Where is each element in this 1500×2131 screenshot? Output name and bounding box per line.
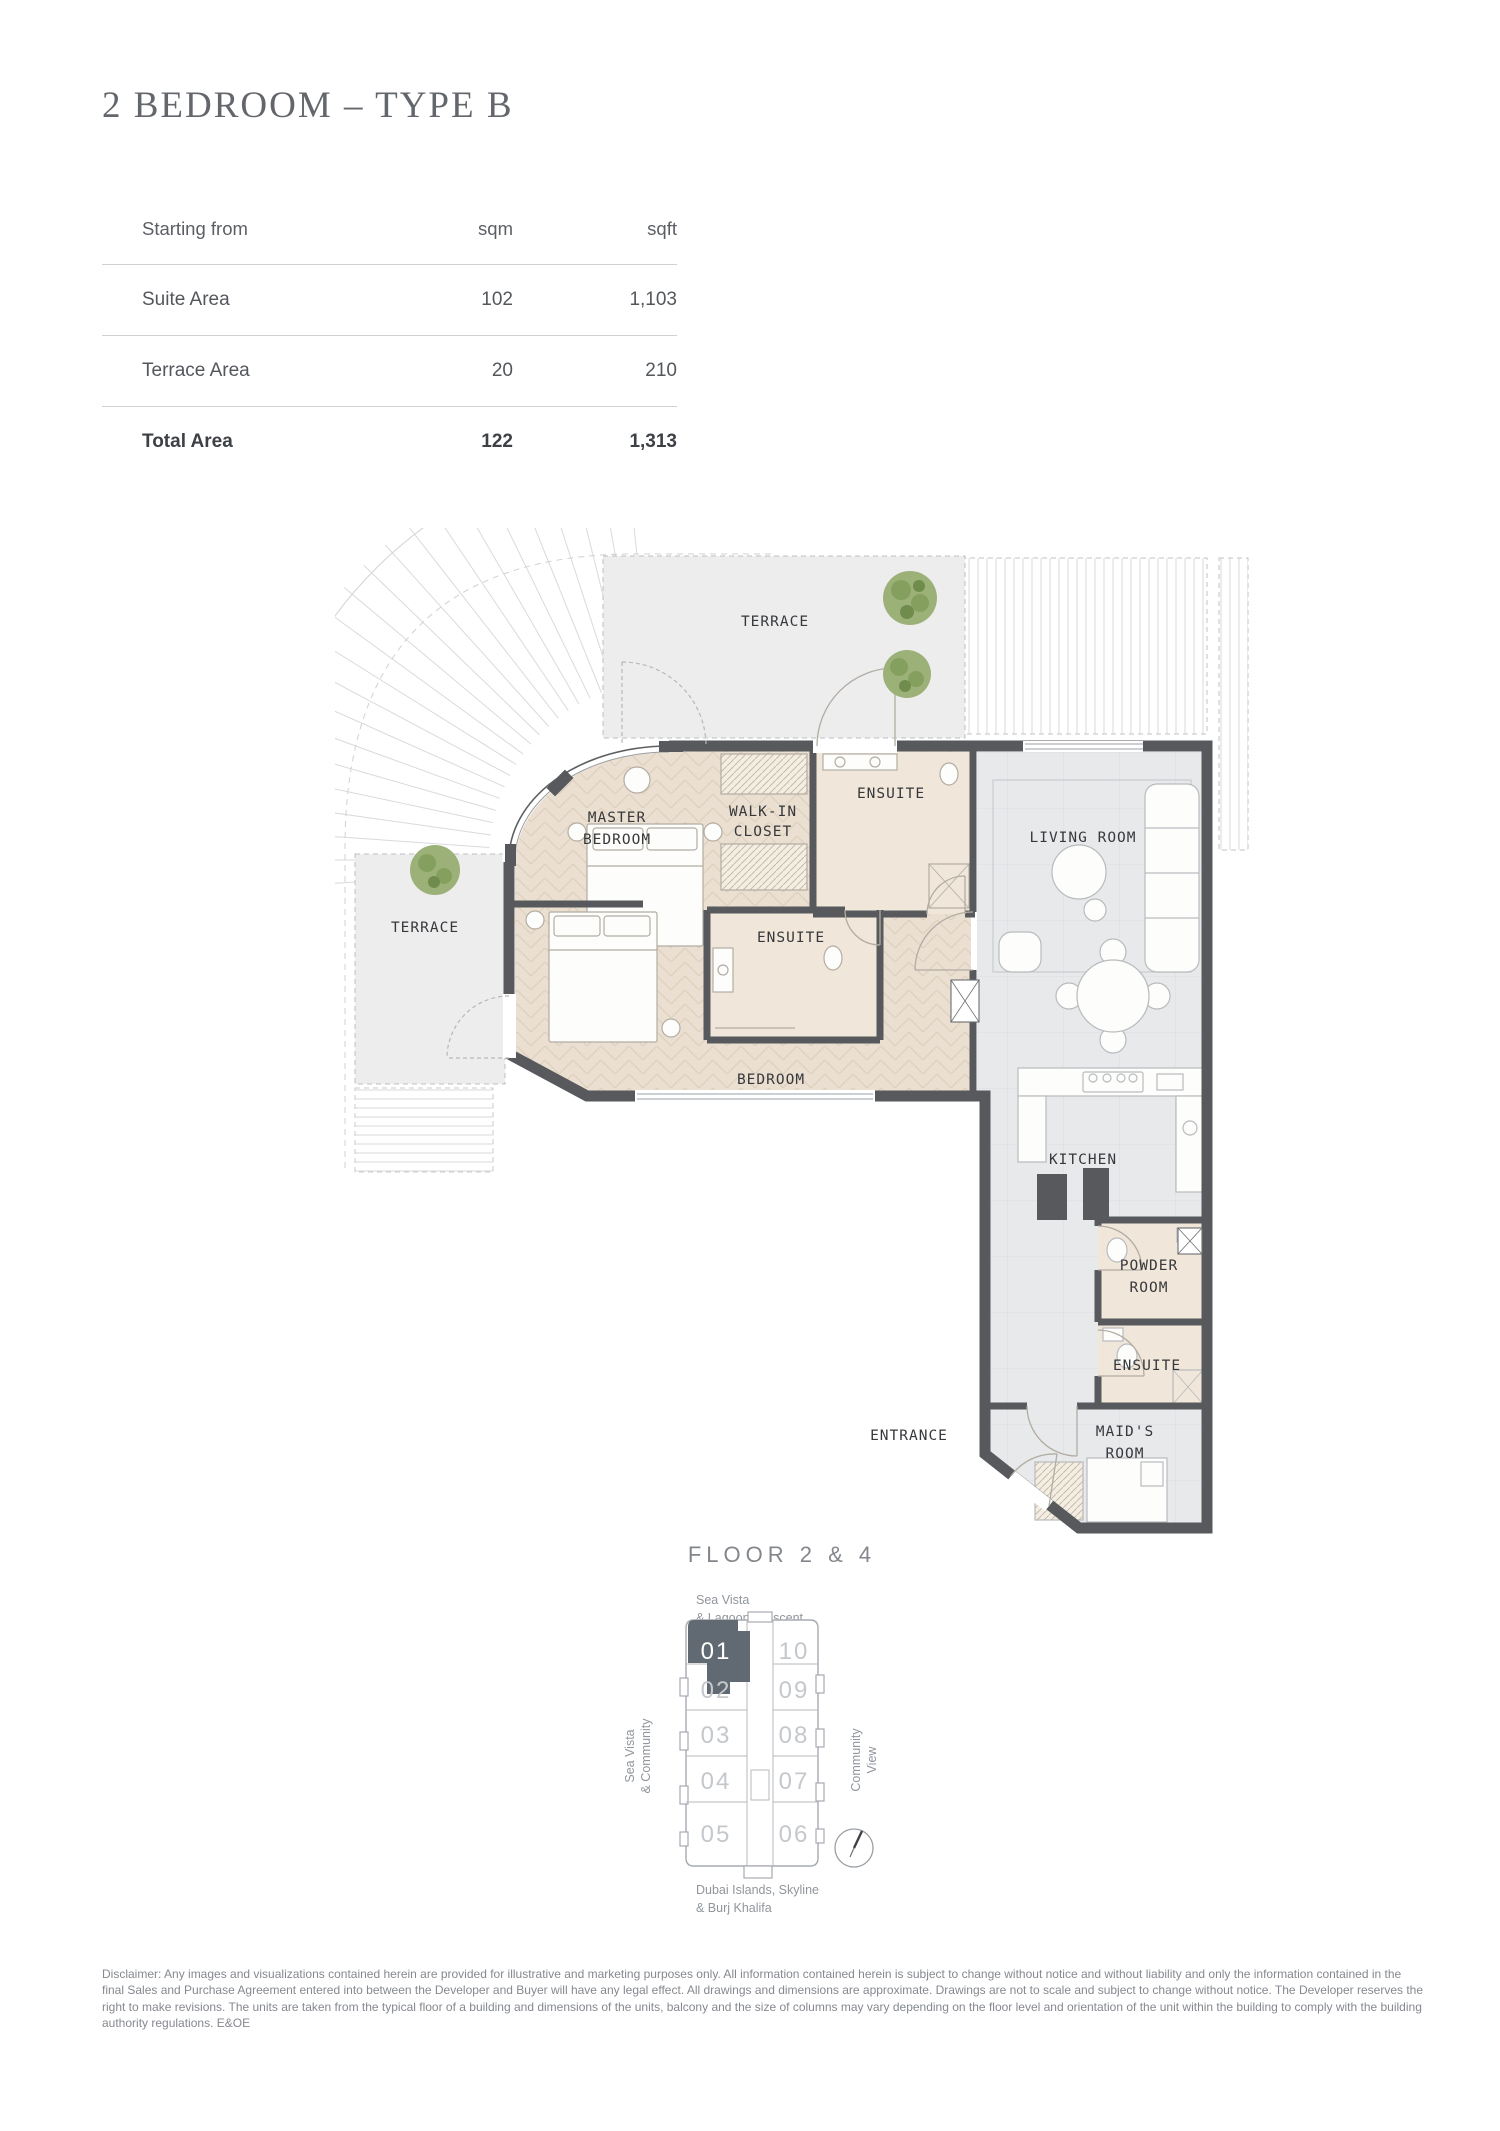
room-label-walk-in-closet: WALK-IN <box>729 804 797 820</box>
room-label-powder-room: POWDER <box>1120 1258 1178 1274</box>
room-label-master-bedroom: BEDROOM <box>583 832 651 848</box>
page-title: 2 BEDROOM – TYPE B <box>102 84 514 127</box>
row-sqft: 210 <box>513 360 677 382</box>
view-label-left: & Community <box>639 1718 653 1794</box>
unit-number-03: 03 <box>701 1722 732 1749</box>
room-label-bedroom: BEDROOM <box>737 1072 805 1088</box>
area-table: Starting from sqm sqft Suite Area 102 1,… <box>102 194 677 477</box>
table-row-total: Total Area 122 1,313 <box>102 407 677 477</box>
unit-number-05: 05 <box>701 1821 732 1848</box>
unit-number-02: 02 <box>701 1677 732 1704</box>
room-label-maids-room: MAID'S <box>1096 1424 1154 1440</box>
room-label-ensuite-master: ENSUITE <box>857 786 925 802</box>
keyplate: FLOOR 2 & 4 Sea Vista & Lagoon Crescent … <box>610 1532 970 1932</box>
room-label-maids-room: ROOM <box>1106 1446 1145 1462</box>
view-label-left: Sea Vista <box>623 1729 637 1782</box>
unit-number-08: 08 <box>779 1722 810 1749</box>
compass-icon <box>835 1829 873 1867</box>
col-starting-from: Starting from <box>102 218 352 240</box>
room-label-walk-in-closet: CLOSET <box>734 824 792 840</box>
disclaimer-text: Disclaimer: Any images and visualization… <box>102 1966 1424 2031</box>
row-sqm: 122 <box>352 431 513 453</box>
room-label-terrace-top: TERRACE <box>741 614 809 630</box>
col-sqm: sqm <box>352 218 513 240</box>
row-label: Terrace Area <box>102 360 352 382</box>
view-label-right: View <box>865 1746 879 1774</box>
view-label-bottom: & Burj Khalifa <box>696 1901 772 1915</box>
view-label-bottom: Dubai Islands, Skyline <box>696 1883 819 1897</box>
row-label: Suite Area <box>102 289 352 311</box>
room-label-ensuite-bedroom: ENSUITE <box>757 930 825 946</box>
room-label-living-room: LIVING ROOM <box>1029 830 1136 846</box>
neighbor-terrace-hatch <box>961 558 1207 734</box>
neighbor-strip-hatch <box>1219 558 1248 850</box>
room-label-master-bedroom: MASTER <box>588 810 646 826</box>
kitchen-wall-stub <box>1037 1174 1067 1220</box>
table-row: Terrace Area 20 210 <box>102 336 677 407</box>
row-sqm: 102 <box>352 289 513 311</box>
unit-number-01: 01 <box>701 1638 732 1665</box>
view-label-top: Sea Vista <box>696 1593 749 1607</box>
keyplate-title: FLOOR 2 & 4 <box>688 1542 876 1567</box>
row-sqm: 20 <box>352 360 513 382</box>
room-label-powder-room: ROOM <box>1130 1280 1169 1296</box>
kitchen-wall-stub <box>1083 1168 1109 1220</box>
col-sqft: sqft <box>513 218 677 240</box>
area-table-header: Starting from sqm sqft <box>102 194 677 265</box>
unit-number-04: 04 <box>701 1768 732 1795</box>
view-label-right: Community <box>849 1728 863 1792</box>
unit-number-07: 07 <box>779 1768 810 1795</box>
row-sqft: 1,103 <box>513 289 677 311</box>
table-row: Suite Area 102 1,103 <box>102 265 677 336</box>
unit-number-10: 10 <box>779 1638 810 1665</box>
floor-plan: TERRACE TERRACE WALK-IN CLOSET ENSUITE M… <box>335 528 1250 1550</box>
room-label-ensuite-maid: ENSUITE <box>1113 1358 1181 1374</box>
row-sqft: 1,313 <box>513 431 677 453</box>
room-label-kitchen: KITCHEN <box>1049 1152 1117 1168</box>
row-label: Total Area <box>102 431 352 453</box>
brochure-page: 2 BEDROOM – TYPE B Starting from sqm sqf… <box>0 0 1500 2131</box>
room-label-terrace-left: TERRACE <box>391 920 459 936</box>
unit-number-09: 09 <box>779 1677 810 1704</box>
unit-number-06: 06 <box>779 1821 810 1848</box>
walkway-hatch <box>355 1088 493 1172</box>
room-label-entrance: ENTRANCE <box>870 1428 948 1444</box>
